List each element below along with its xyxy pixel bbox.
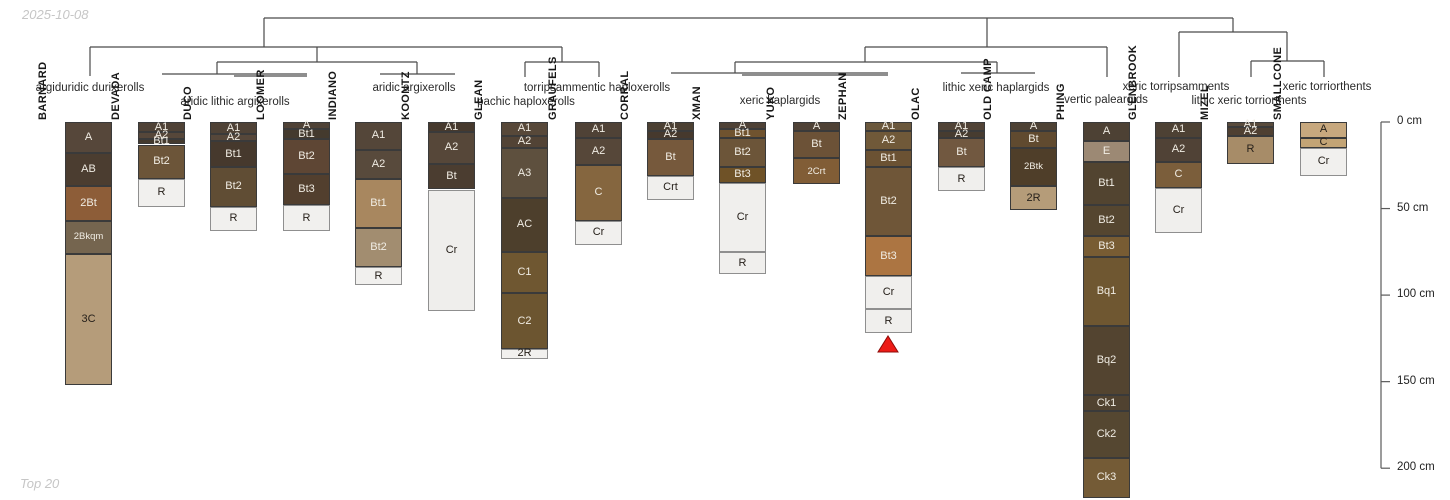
horizon-label: Cr [593,227,605,238]
horizon-label: A1 [445,122,458,133]
depth-tick-label: 200 cm [1397,461,1435,473]
horizon-box: Cr [865,276,912,309]
horizon-label: R [375,271,383,282]
horizon-label: AC [517,219,532,230]
horizon-label: Bt2 [734,147,751,158]
horizon-box: R [938,167,985,191]
horizon-box: R [719,252,766,275]
horizon-box: A2 [938,131,985,138]
series-name-label: YUKO [765,87,778,120]
horizon-box: Bt [938,138,985,167]
horizon-box: A2 [647,131,694,140]
horizon-label: Cr [446,245,458,256]
horizon-label: Cr [737,212,749,223]
horizon-label: A1 [518,123,531,134]
series-name-label: INDIANO [327,71,340,120]
group-label: lithic xeric haplargids [943,82,1050,94]
horizon-box: Bt2 [1083,205,1130,236]
horizon-box: C2 [501,293,548,348]
horizon-box: R [865,309,912,333]
horizon-box: R [1227,136,1274,164]
horizon-label: E [1103,146,1110,157]
series-name-label: GLEAN [473,80,486,121]
horizon-box: A2 [575,138,622,166]
horizon-box: Ck2 [1083,411,1130,458]
horizon-label: Ck3 [1097,472,1117,483]
horizon-label: R [958,174,966,185]
horizon-box: A [1083,122,1130,141]
horizon-box: R [283,205,330,231]
horizon-box: A2 [355,150,402,179]
horizon-label: Bt2 [225,181,242,192]
horizon-label: A1 [372,130,385,141]
horizon-box: A1 [428,122,475,132]
group-label: pachic haploxerolls [477,96,575,108]
group-label: torripsammentic haploxerolls [524,82,670,94]
horizon-box: 2R [1010,186,1057,210]
horizon-label: 2Btk [1024,162,1043,172]
horizon-box: Bt [428,164,475,190]
series-name-label: GRAUFELS [547,56,560,120]
group-label: xeric torriorthents [1283,81,1372,93]
horizon-box: Bt2 [865,167,912,236]
horizon-label: Bt1 [225,149,242,160]
horizon-box: Cr [1300,148,1347,176]
horizon-box: Bq2 [1083,326,1130,395]
horizon-box: A [65,122,112,153]
horizon-box: E [1083,141,1130,162]
horizon-label: Bt [665,152,675,163]
horizon-box: 3C [65,254,112,386]
series-name-label: XMAN [691,86,704,120]
horizon-box: Cr [575,221,622,245]
horizon-label: C2 [517,316,531,327]
group-label: xeric haplargids [740,95,821,107]
horizon-label: Bt [956,147,966,158]
horizon-box: A1 [501,122,548,136]
soil-dendrogram-chart: 2025-10-08 Top 20 0 cm50 cm100 cm150 cm2… [0,0,1450,500]
horizon-label: C [1320,137,1328,148]
horizon-box: Cr [719,183,766,252]
series-name-label: BARNARD [37,62,50,120]
series-name-label: KOONTZ [400,71,413,120]
horizon-box: R [138,179,185,207]
horizon-box: Bt [647,139,694,175]
group-label: aridic argixerolls [372,82,455,94]
horizon-label: 2Crt [808,167,826,177]
horizon-box: C [1300,138,1347,148]
horizon-label: A2 [1172,144,1185,155]
horizon-label: R [739,258,747,269]
horizon-label: Bq2 [1097,355,1117,366]
depth-tick-label: 50 cm [1397,202,1428,214]
horizon-box: C [575,165,622,220]
horizon-label: Cr [883,287,895,298]
horizon-label: A2 [592,146,605,157]
horizon-label: Bt2 [1098,215,1115,226]
horizon-label: A1 [1172,124,1185,135]
group-label: argiduridic durixerolls [36,82,145,94]
depth-tick-label: 100 cm [1397,288,1435,300]
horizon-box: 2R [501,349,548,359]
horizon-box: A1 [355,122,402,150]
horizon-box: Bt2 [719,138,766,167]
horizon-label: Bt3 [880,251,897,262]
horizon-label: Bt [1028,134,1038,145]
horizon-box: Bt2 [355,228,402,268]
horizon-label: C [1175,169,1183,180]
horizon-label: Bt1 [298,129,315,140]
horizon-label: Bt2 [370,242,387,253]
horizon-label: Bt2 [153,156,170,167]
horizon-box: 2Bt [65,186,112,221]
horizon-box: AB [65,153,112,186]
horizon-box: Bt [793,131,840,159]
horizon-label: A3 [518,168,531,179]
horizon-box: A2 [1227,127,1274,136]
horizon-box: Bt1 [355,179,402,227]
horizon-box: Bt3 [719,167,766,183]
horizon-box: Ck1 [1083,395,1130,411]
series-name-label: MIZEL [1199,85,1212,120]
horizon-label: A [1320,124,1327,135]
horizon-label: A [85,132,92,143]
horizon-box: Bt3 [865,236,912,276]
horizon-box: A2 [428,132,475,163]
horizon-label: R [1247,144,1255,155]
horizon-box: Bt1 [210,141,257,167]
horizon-box: Bq1 [1083,257,1130,326]
depth-tick-label: 150 cm [1397,375,1435,387]
horizon-box: Crt [647,176,694,200]
horizon-box: 2Btk [1010,148,1057,186]
horizon-label: A2 [372,159,385,170]
horizon-box: A1 [865,122,912,131]
series-name-label: OLD CAMP [982,58,995,120]
horizon-label: Bt1 [1098,178,1115,189]
horizon-label: R [303,213,311,224]
horizon-label: R [885,316,893,327]
horizon-label: Bt1 [370,198,387,209]
horizon-box: Bt1 [1083,162,1130,205]
horizon-box: Bt1 [865,150,912,167]
horizon-box: A2 [501,136,548,148]
horizon-label: A2 [882,135,895,146]
horizon-label: 2Bt [80,198,97,209]
horizon-box: Bt3 [1083,236,1130,257]
horizon-box: A3 [501,148,548,198]
horizon-label: Bq1 [1097,286,1117,297]
horizon-box: Bt2 [138,145,185,180]
horizon-label: A [1103,126,1110,137]
horizon-label: C [595,187,603,198]
horizon-label: Bt3 [298,184,315,195]
group-label: aridic lithic argixerolls [180,96,289,108]
horizon-label: A1 [592,124,605,135]
horizon-box: A [1010,122,1057,131]
horizon-label: Cr [1318,156,1330,167]
horizon-box: A2 [865,131,912,150]
horizon-box: A1 [575,122,622,138]
horizon-label: Bt2 [298,151,315,162]
horizon-label: Bt3 [734,169,751,180]
horizon-box: Bt2 [210,167,257,207]
horizon-box: Bt [1010,131,1057,148]
horizon-box: R [210,207,257,231]
series-name-label: DUCO [182,86,195,120]
horizon-label: Cr [1173,205,1185,216]
horizon-box: 2Crt [793,158,840,184]
horizon-label: Ck2 [1097,429,1117,440]
horizon-label: A2 [518,136,531,147]
horizon-label: C1 [517,267,531,278]
horizon-box: Bt1 [283,129,330,139]
horizon-box: A1 [1155,122,1202,138]
horizon-label: Bt2 [880,196,897,207]
horizon-box: R [355,267,402,284]
series-name-label: OLAC [910,87,923,120]
horizon-box: Cr [1155,188,1202,233]
horizon-box: 2Bkqm [65,221,112,254]
horizon-box: A [793,122,840,131]
horizon-label: Bt [811,139,821,150]
horizon-box: A [1300,122,1347,138]
horizon-label: 2R [517,348,531,359]
series-name-label: CORRAL [619,71,632,120]
red-triangle-marker [878,336,898,352]
horizon-label: Ck1 [1097,398,1117,409]
horizon-label: Bt3 [1098,241,1115,252]
horizon-box: A2 [210,134,257,141]
horizon-label: 2Bkqm [74,232,104,242]
series-name-label: GLENBROOK [1127,45,1140,120]
horizon-label: Bt1 [880,153,897,164]
horizon-label: R [230,213,238,224]
horizon-box: C [1155,162,1202,188]
horizon-box: Bt2 [283,139,330,174]
series-name-label: PHING [1055,83,1068,120]
horizon-box: AC [501,198,548,252]
horizon-label: A2 [445,142,458,153]
horizon-box: Bt1 [719,129,766,138]
series-name-label: ZEPHAN [837,72,850,120]
horizon-label: AB [81,164,96,175]
horizon-box: Ck3 [1083,458,1130,498]
horizon-label: 2R [1026,193,1040,204]
horizon-box: Cr [428,190,475,311]
horizon-box: A2 [1155,138,1202,162]
horizon-label: Bt [446,171,456,182]
series-name-label: LOOMER [255,69,268,120]
horizon-box: C1 [501,252,548,294]
horizon-box: Bt3 [283,174,330,205]
horizon-label: R [158,187,166,198]
horizon-label: 3C [81,314,95,325]
depth-tick-label: 0 cm [1397,115,1422,127]
series-name-label: DEVADA [110,72,123,120]
horizon-label: Crt [663,182,678,193]
series-name-label: SMALLCONE [1272,47,1285,120]
